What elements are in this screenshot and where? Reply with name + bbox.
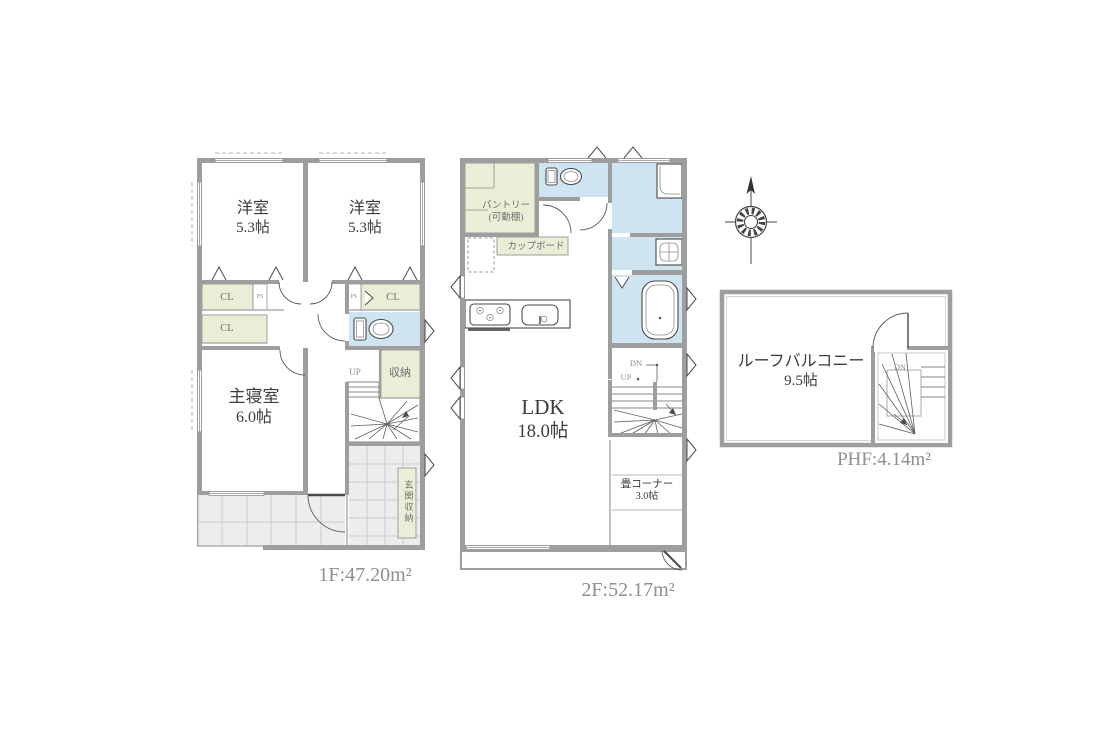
casement-window-mark bbox=[425, 320, 434, 342]
porch-tile-area bbox=[197, 495, 347, 546]
closet-label: CL bbox=[220, 322, 233, 335]
roof-plan: ルーフバルコニー 9.5帖 DN PHF:4.14m² bbox=[710, 280, 962, 484]
room-name: LDK bbox=[518, 394, 569, 421]
room-label-roof-balcony: ルーフバルコニー 9.5帖 bbox=[738, 352, 865, 392]
closet-label: CL bbox=[386, 291, 399, 304]
room-size: 18.0帖 bbox=[518, 421, 569, 445]
kitchen-counter bbox=[465, 300, 570, 331]
room-name: ルーフバルコニー bbox=[738, 352, 865, 372]
refrigerator-space bbox=[468, 238, 494, 272]
room-label-master: 主寝室 6.0帖 bbox=[229, 386, 280, 428]
floor2-plan: パントリー (可動棚) カップボード LDK 18.0帖 畳コーナー 3.0帖 … bbox=[448, 146, 700, 612]
washing-machine-icon bbox=[656, 239, 682, 265]
room-name: 洋室 bbox=[236, 199, 270, 219]
pipe-space-label: PS bbox=[351, 294, 358, 302]
floor1-plan: 洋室 5.3帖 洋室 5.3帖 主寝室 6.0帖 CL CL CL PS PS … bbox=[185, 146, 437, 598]
entrance-storage-label: 玄関収納 bbox=[402, 480, 414, 524]
room-name: 畳コーナー bbox=[621, 478, 674, 491]
room-label-ldk: LDK 18.0帖 bbox=[518, 394, 569, 445]
compass bbox=[721, 172, 783, 268]
penthouse-door-opening bbox=[874, 344, 907, 352]
room-name: 主寝室 bbox=[229, 386, 280, 408]
floor1-area-label: 1F:47.20m² bbox=[318, 563, 411, 589]
room-label-western2: 洋室 5.3帖 bbox=[348, 199, 382, 239]
stairs-up-label: UP bbox=[621, 372, 632, 383]
closet-label: CL bbox=[220, 291, 233, 304]
pantry-label: パントリー (可動棚) bbox=[482, 200, 530, 224]
pantry-note: (可動棚) bbox=[482, 212, 530, 224]
room-size: 9.5帖 bbox=[738, 372, 865, 391]
room-size: 6.0帖 bbox=[229, 408, 280, 428]
stairs-down-label: DN bbox=[894, 363, 906, 373]
floor2-area-label: 2F:52.17m² bbox=[581, 578, 674, 604]
pantry-name: パントリー bbox=[482, 200, 530, 212]
casement-window-mark bbox=[425, 454, 434, 476]
stairs-down-label: DN bbox=[630, 358, 642, 369]
toilet-icon bbox=[546, 168, 582, 185]
pipe-space-label: PS bbox=[257, 294, 264, 302]
room-label-western1: 洋室 5.3帖 bbox=[236, 199, 270, 239]
room-label-tatami: 畳コーナー 3.0帖 bbox=[621, 478, 674, 504]
storage-label: 収納 bbox=[389, 366, 411, 380]
toilet-icon bbox=[354, 318, 393, 340]
doors-2f bbox=[543, 203, 607, 233]
room-name: 洋室 bbox=[348, 199, 382, 219]
cupboard-label: カップボード bbox=[507, 241, 564, 253]
room-size: 5.3帖 bbox=[236, 219, 270, 238]
room-size: 5.3帖 bbox=[348, 219, 382, 238]
room-size: 3.0帖 bbox=[621, 491, 674, 504]
linen-cabinet-icon bbox=[657, 164, 682, 198]
floorplan-canvas: 洋室 5.3帖 洋室 5.3帖 主寝室 6.0帖 CL CL CL PS PS … bbox=[0, 0, 1100, 733]
balcony bbox=[461, 550, 686, 570]
compass-icon bbox=[721, 172, 783, 268]
stairs-up-label: UP bbox=[349, 367, 361, 379]
roof-area-label: PHF:4.14m² bbox=[837, 448, 931, 472]
